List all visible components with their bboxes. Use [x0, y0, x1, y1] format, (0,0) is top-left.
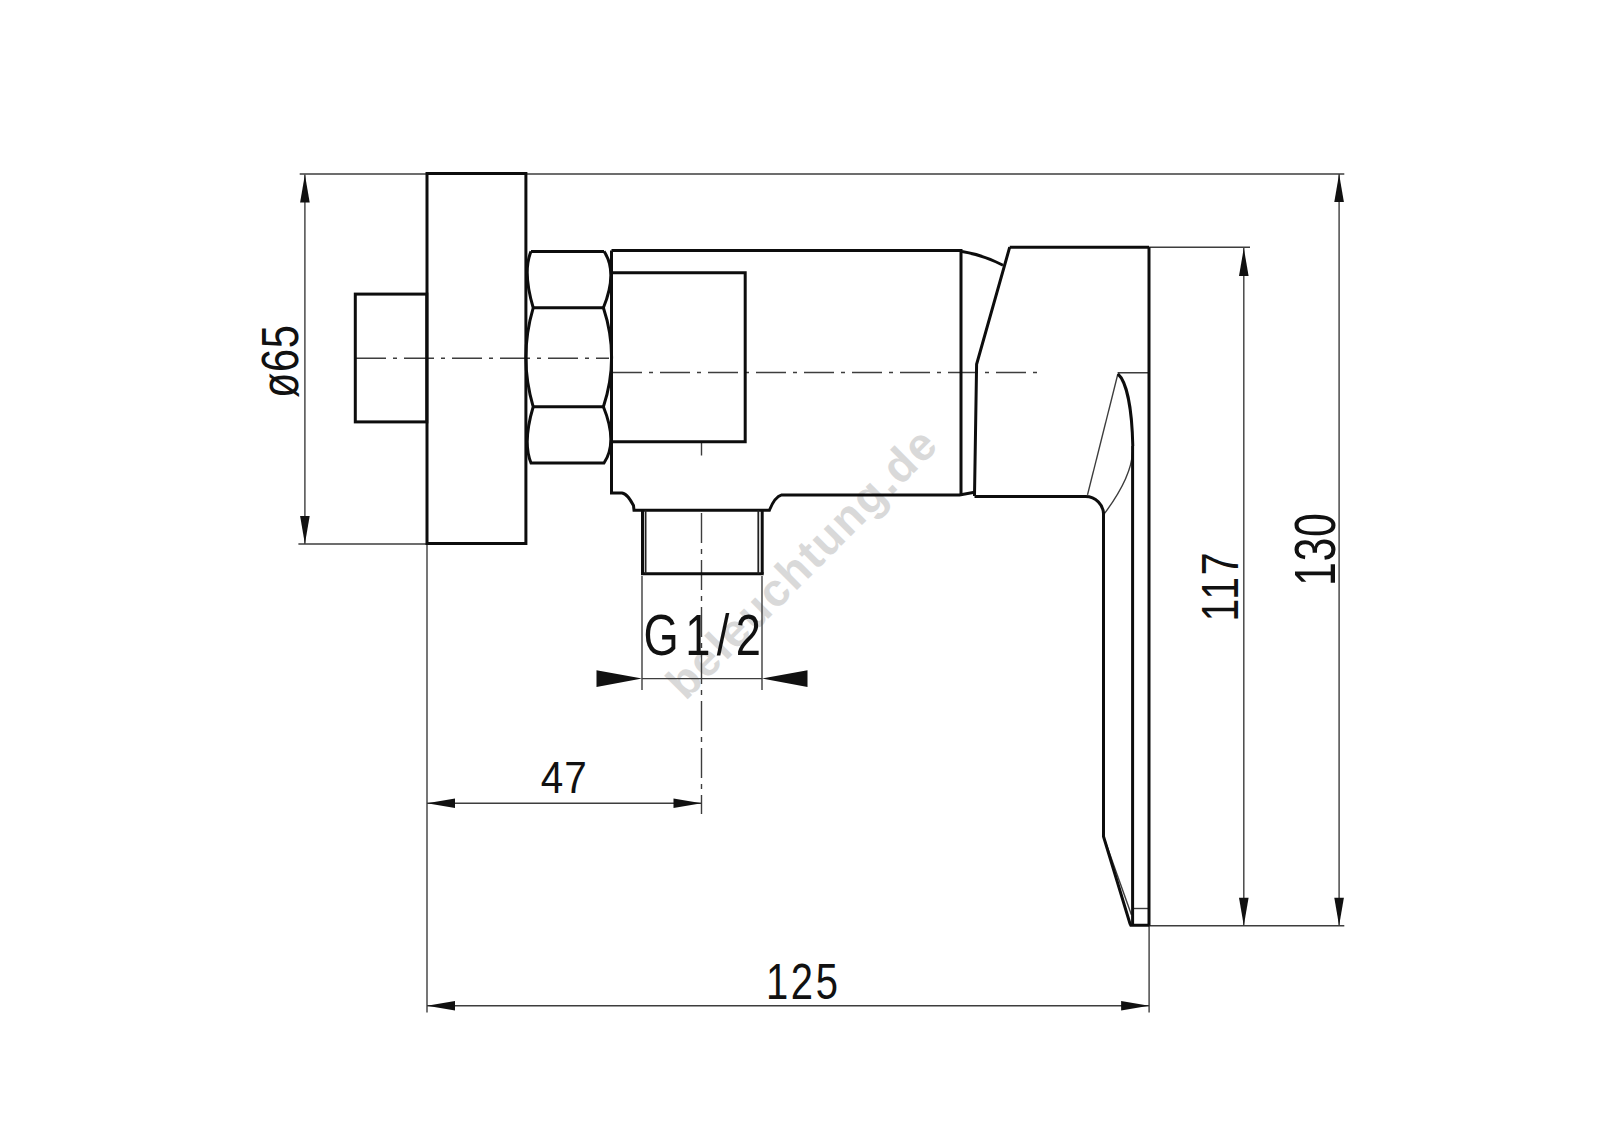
svg-text:117: 117: [1191, 553, 1248, 622]
svg-text:ø65: ø65: [250, 325, 309, 398]
svg-text:47: 47: [541, 752, 587, 802]
svg-text:125: 125: [766, 953, 838, 1009]
svg-text:130: 130: [1282, 513, 1347, 586]
svg-text:G1/2: G1/2: [643, 603, 760, 668]
